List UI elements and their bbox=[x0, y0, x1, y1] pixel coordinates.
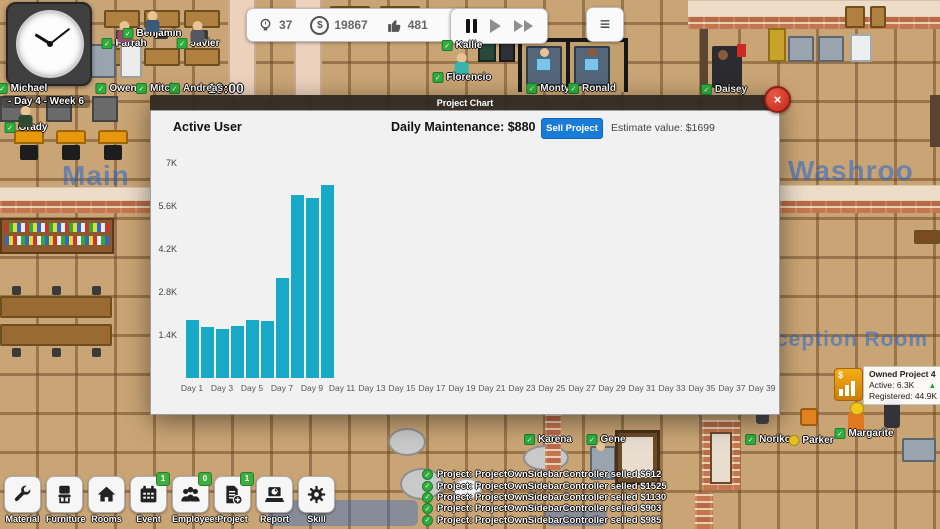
resource-value: 19867 bbox=[334, 18, 367, 32]
person-sprite bbox=[19, 106, 33, 127]
x-axis-tick: Day 19 bbox=[449, 383, 476, 393]
y-axis-tick: 2.8K bbox=[147, 287, 177, 297]
x-axis-tick: Day 27 bbox=[569, 383, 596, 393]
log-text: Project: ProjectOwnSidebarController sel… bbox=[437, 492, 666, 503]
desk bbox=[184, 48, 220, 66]
x-axis-tick: Day 37 bbox=[719, 383, 746, 393]
game-date: - Day 4 - Week 6 bbox=[2, 95, 90, 108]
shelf-items bbox=[5, 236, 109, 245]
toolbar-label: Skill bbox=[298, 514, 335, 524]
x-axis-tick: Day 31 bbox=[629, 383, 656, 393]
character-karena[interactable]: ✓Karena bbox=[524, 434, 572, 445]
x-axis-tick: Day 35 bbox=[689, 383, 716, 393]
check-icon: ✓ bbox=[422, 515, 433, 526]
character-name: Michael bbox=[11, 83, 48, 94]
chair bbox=[56, 130, 86, 144]
washer bbox=[788, 36, 814, 62]
bulb-icon bbox=[257, 17, 274, 34]
bar-day-5 bbox=[246, 320, 259, 378]
report-icon bbox=[264, 484, 285, 505]
chair bbox=[98, 130, 128, 144]
chair-base bbox=[20, 145, 38, 160]
owned-project-panel[interactable]: $ Owned Project 4 Active: 6.3K▲ Register… bbox=[834, 366, 940, 405]
status-icon: ✓ bbox=[586, 434, 597, 445]
material-button[interactable] bbox=[4, 476, 41, 513]
desk bbox=[144, 48, 180, 66]
character-andreas[interactable]: ✓Andreas bbox=[169, 83, 223, 94]
maintenance-label: Daily Maintenance: $880 bbox=[391, 120, 536, 134]
estimate-value: Estimate value: $1699 bbox=[611, 122, 715, 134]
y-axis-tick: 5.6K bbox=[147, 201, 177, 211]
person-sprite[interactable] bbox=[718, 50, 728, 60]
x-axis-tick: Day 33 bbox=[659, 383, 686, 393]
log-text: Project: ProjectOwnSidebarController sel… bbox=[437, 481, 667, 492]
character-noriko[interactable]: ✓Noriko bbox=[745, 434, 791, 445]
character-javier[interactable]: ✓Javier bbox=[177, 38, 220, 49]
person-sprite bbox=[191, 21, 205, 42]
toolbar-label: Employees bbox=[172, 514, 209, 524]
bar-day-10 bbox=[321, 185, 334, 379]
brick-band bbox=[0, 200, 150, 213]
status-icon: ✓ bbox=[526, 83, 537, 94]
y-axis-tick: 7K bbox=[147, 158, 177, 168]
counter bbox=[902, 438, 936, 462]
menu-button[interactable]: ≡ bbox=[586, 7, 624, 42]
shelf-items bbox=[5, 223, 109, 232]
people-icon bbox=[180, 484, 201, 505]
character-grady[interactable]: ✓Grady bbox=[5, 122, 48, 133]
house-icon bbox=[96, 484, 117, 505]
toolbar-label: Event bbox=[130, 514, 167, 524]
status-icon: ✓ bbox=[5, 122, 16, 133]
character-name: Ronald bbox=[582, 83, 616, 94]
chair bbox=[52, 348, 61, 357]
brick-band bbox=[688, 16, 940, 29]
status-icon: ✓ bbox=[122, 28, 133, 39]
document-add-icon bbox=[222, 484, 243, 505]
person-sprite[interactable] bbox=[540, 48, 549, 57]
active-user-bar-chart: 7K5.6K4.2K2.8K1.4KDay 1Day 3Day 5Day 7Da… bbox=[181, 161, 781, 396]
badge-count: 0 bbox=[198, 472, 212, 486]
room-wall bbox=[624, 38, 628, 92]
sell-project-button[interactable]: Sell Project bbox=[541, 118, 603, 139]
wall-segment bbox=[930, 95, 940, 147]
door bbox=[768, 28, 786, 62]
log-entry: ✓Project: ProjectOwnSidebarController se… bbox=[422, 480, 667, 491]
analog-clock bbox=[16, 10, 84, 78]
person-sprite bbox=[145, 11, 159, 32]
x-axis-tick: Day 25 bbox=[539, 383, 566, 393]
bookshelf bbox=[0, 218, 114, 254]
project-registered: Registered: 44.9K bbox=[869, 391, 937, 402]
check-icon: ✓ bbox=[422, 492, 433, 503]
chart-section-title: Active User bbox=[173, 120, 242, 134]
chair bbox=[12, 348, 21, 357]
monitor bbox=[536, 58, 551, 71]
character-ronald[interactable]: ✓Ronald bbox=[568, 83, 616, 94]
bar-day-3 bbox=[216, 329, 229, 378]
chair bbox=[92, 286, 101, 295]
x-axis-tick: Day 13 bbox=[359, 383, 386, 393]
character-gene[interactable]: ✓Gene bbox=[586, 434, 625, 445]
bar-day-8 bbox=[291, 195, 304, 378]
character-florencio[interactable]: ✓Florencio bbox=[432, 72, 491, 83]
x-axis-tick: Day 3 bbox=[211, 383, 233, 393]
check-icon: ✓ bbox=[422, 481, 433, 492]
character-monty[interactable]: ✓Monty bbox=[526, 83, 569, 94]
report-button[interactable] bbox=[256, 476, 293, 513]
x-axis-tick: Day 5 bbox=[241, 383, 263, 393]
x-axis-tick: Day 15 bbox=[389, 383, 416, 393]
status-icon: ✓ bbox=[432, 72, 443, 83]
person-sprite[interactable] bbox=[588, 48, 597, 57]
character-name: Andreas bbox=[183, 83, 223, 94]
toolbar-item-employees: 0Employees bbox=[172, 476, 209, 524]
status-icon bbox=[788, 435, 799, 446]
x-axis-tick: Day 39 bbox=[749, 383, 776, 393]
thumbsup-icon bbox=[386, 17, 403, 34]
status-icon: ✓ bbox=[524, 434, 535, 445]
y-axis-tick: 1.4K bbox=[147, 330, 177, 340]
project-chart-modal: Project Chart × Active User Daily Mainte… bbox=[150, 95, 780, 415]
x-axis-tick: Day 1 bbox=[181, 383, 203, 393]
character-kallie[interactable]: ✓Kallie bbox=[442, 40, 483, 51]
chair-base bbox=[62, 145, 80, 160]
room-wall bbox=[518, 38, 522, 92]
furniture-button[interactable] bbox=[46, 476, 83, 513]
toolbar-label: Rooms bbox=[88, 514, 125, 524]
toolbar-item-furniture: Furniture bbox=[46, 476, 83, 524]
toolbar-item-material: Material bbox=[4, 476, 41, 524]
pause-button[interactable] bbox=[466, 19, 477, 33]
fridge bbox=[120, 44, 142, 78]
appliance bbox=[850, 34, 872, 62]
status-icon: ✓ bbox=[136, 83, 147, 94]
shelf bbox=[914, 230, 940, 244]
log-entry: ✓Project: ProjectOwnSidebarController se… bbox=[422, 503, 667, 514]
project-panel-text: Owned Project 4 Active: 6.3K▲ Registered… bbox=[863, 366, 940, 405]
bar-day-2 bbox=[201, 327, 214, 378]
toolbar-item-project: 1Project bbox=[214, 476, 251, 524]
status-icon: ✓ bbox=[101, 38, 112, 49]
badge-count: 1 bbox=[156, 472, 170, 486]
red-flag bbox=[737, 44, 746, 57]
log-entry: ✓Project: ProjectOwnSidebarController se… bbox=[422, 515, 667, 526]
chair bbox=[92, 348, 101, 357]
close-icon[interactable]: × bbox=[764, 86, 791, 113]
status-icon: ✓ bbox=[177, 38, 188, 49]
toolbar-item-skill: Skill bbox=[298, 476, 335, 524]
project-icon: $ bbox=[834, 368, 863, 401]
status-icon: ✓ bbox=[169, 83, 180, 94]
status-icon: ✓ bbox=[745, 434, 756, 445]
x-axis-tick: Day 29 bbox=[599, 383, 626, 393]
game-viewport: Main Washroo ception Room ✓Michael✓Farra… bbox=[0, 0, 940, 529]
gear-icon bbox=[306, 484, 327, 505]
log-text: Project: ProjectOwnSidebarController sel… bbox=[437, 469, 661, 480]
room-label-washroom: Washroo bbox=[788, 155, 914, 187]
bar-day-1 bbox=[186, 320, 199, 378]
trend-up-icon: ▲ bbox=[928, 381, 936, 390]
character-name: Margarite bbox=[848, 428, 893, 439]
fast-forward-button[interactable] bbox=[514, 20, 533, 32]
washer bbox=[818, 36, 844, 62]
character-name: Gene bbox=[600, 434, 625, 445]
character-name: Daisey bbox=[715, 84, 747, 95]
modal-title: Project Chart bbox=[150, 95, 780, 110]
x-axis-tick: Day 9 bbox=[301, 383, 323, 393]
resource-value: 37 bbox=[279, 18, 292, 32]
table bbox=[0, 296, 112, 318]
character-parker[interactable]: Parker bbox=[788, 435, 833, 446]
x-axis-tick: Day 17 bbox=[419, 383, 446, 393]
calendar-icon bbox=[138, 484, 159, 505]
character-name: Benjamin bbox=[136, 28, 181, 39]
modal-body: Active User Daily Maintenance: $880 Sell… bbox=[150, 110, 780, 415]
toolbar-label: Report bbox=[256, 514, 293, 524]
monitor bbox=[584, 58, 599, 71]
resource-money: $19867 bbox=[310, 16, 367, 35]
x-axis-tick: Day 21 bbox=[479, 383, 506, 393]
toolbar-label: Project bbox=[214, 514, 251, 524]
badge-count: 1 bbox=[240, 472, 254, 486]
character-name: Parker bbox=[802, 435, 833, 446]
resource-idea: 37 bbox=[257, 17, 292, 34]
notification-log: ✓Project: ProjectOwnSidebarController se… bbox=[422, 469, 667, 526]
character-daisey[interactable]: ✓Daisey bbox=[701, 84, 747, 95]
project-active: Active: 6.3K▲ bbox=[869, 380, 937, 391]
character-margarite[interactable]: ✓Margarite bbox=[834, 428, 893, 439]
character-michael[interactable]: ✓Michael bbox=[0, 83, 47, 94]
chair bbox=[12, 286, 21, 295]
cabinet bbox=[92, 96, 118, 122]
log-text: Project: ProjectOwnSidebarController sel… bbox=[437, 503, 661, 514]
clock-panel bbox=[6, 2, 92, 86]
skill-button[interactable] bbox=[298, 476, 335, 513]
character-name: Owen bbox=[109, 83, 136, 94]
character-farrah[interactable]: ✓Farrah bbox=[101, 38, 146, 49]
y-axis-tick: 4.2K bbox=[147, 244, 177, 254]
status-icon: ✓ bbox=[701, 84, 712, 95]
check-icon: ✓ bbox=[422, 503, 433, 514]
resource-value: 481 bbox=[408, 18, 428, 32]
bar-day-4 bbox=[231, 326, 244, 378]
toolbar-item-report: Report bbox=[256, 476, 293, 524]
resource-likes: 481 bbox=[386, 17, 428, 34]
bottom-toolbar: MaterialFurnitureRooms1Event0Employees1P… bbox=[4, 476, 335, 524]
character-name: Noriko bbox=[759, 434, 791, 445]
status-icon: ✓ bbox=[95, 83, 106, 94]
chair bbox=[52, 286, 61, 295]
log-text: Project: ProjectOwnSidebarController sel… bbox=[437, 515, 661, 526]
wrench-icon bbox=[12, 484, 33, 505]
file-cabinet bbox=[90, 44, 116, 78]
bar-day-7 bbox=[276, 278, 289, 378]
status-icon: ✓ bbox=[568, 83, 579, 94]
round-table bbox=[388, 428, 426, 456]
character-name: Karena bbox=[538, 434, 572, 445]
room-label-main: Main bbox=[62, 160, 130, 192]
room-label-reception: ception Room bbox=[776, 328, 928, 352]
bar-day-6 bbox=[261, 321, 274, 378]
chair bbox=[800, 408, 818, 426]
log-entry: ✓Project: ProjectOwnSidebarController se… bbox=[422, 469, 667, 480]
play-button[interactable] bbox=[490, 19, 501, 33]
toolbar-label: Material bbox=[4, 514, 41, 524]
x-axis-tick: Day 11 bbox=[329, 383, 355, 393]
person-sprite bbox=[455, 53, 469, 74]
character-name: Kallie bbox=[456, 40, 483, 51]
character-owen[interactable]: ✓Owen bbox=[95, 83, 136, 94]
brick-band bbox=[780, 200, 940, 213]
chair-base bbox=[104, 145, 122, 160]
check-icon: ✓ bbox=[422, 469, 433, 480]
speed-controls bbox=[450, 8, 548, 44]
x-axis-tick: Day 23 bbox=[509, 383, 536, 393]
character-name: Florencio bbox=[446, 72, 491, 83]
chair-icon bbox=[54, 484, 75, 505]
toolbar-label: Furniture bbox=[46, 514, 83, 524]
status-icon: ✓ bbox=[0, 83, 8, 94]
cabinet bbox=[845, 6, 865, 28]
bar-day-9 bbox=[306, 198, 319, 378]
clock-center bbox=[47, 41, 53, 47]
character-name: Monty bbox=[540, 83, 569, 94]
toolbar-item-rooms: Rooms bbox=[88, 476, 125, 524]
log-entry: ✓Project: ProjectOwnSidebarController se… bbox=[422, 492, 667, 503]
project-title: Owned Project 4 bbox=[869, 369, 937, 380]
money-icon: $ bbox=[310, 16, 329, 35]
cabinet bbox=[870, 6, 886, 28]
status-icon: ✓ bbox=[442, 40, 453, 51]
rooms-button[interactable] bbox=[88, 476, 125, 513]
character-benjamin[interactable]: ✓Benjamin bbox=[122, 28, 181, 39]
toolbar-item-event: 1Event bbox=[130, 476, 167, 524]
table bbox=[0, 324, 112, 346]
x-axis-tick: Day 7 bbox=[271, 383, 293, 393]
door-inner bbox=[710, 432, 732, 484]
brick-column bbox=[695, 492, 713, 529]
status-icon: ✓ bbox=[834, 428, 845, 439]
